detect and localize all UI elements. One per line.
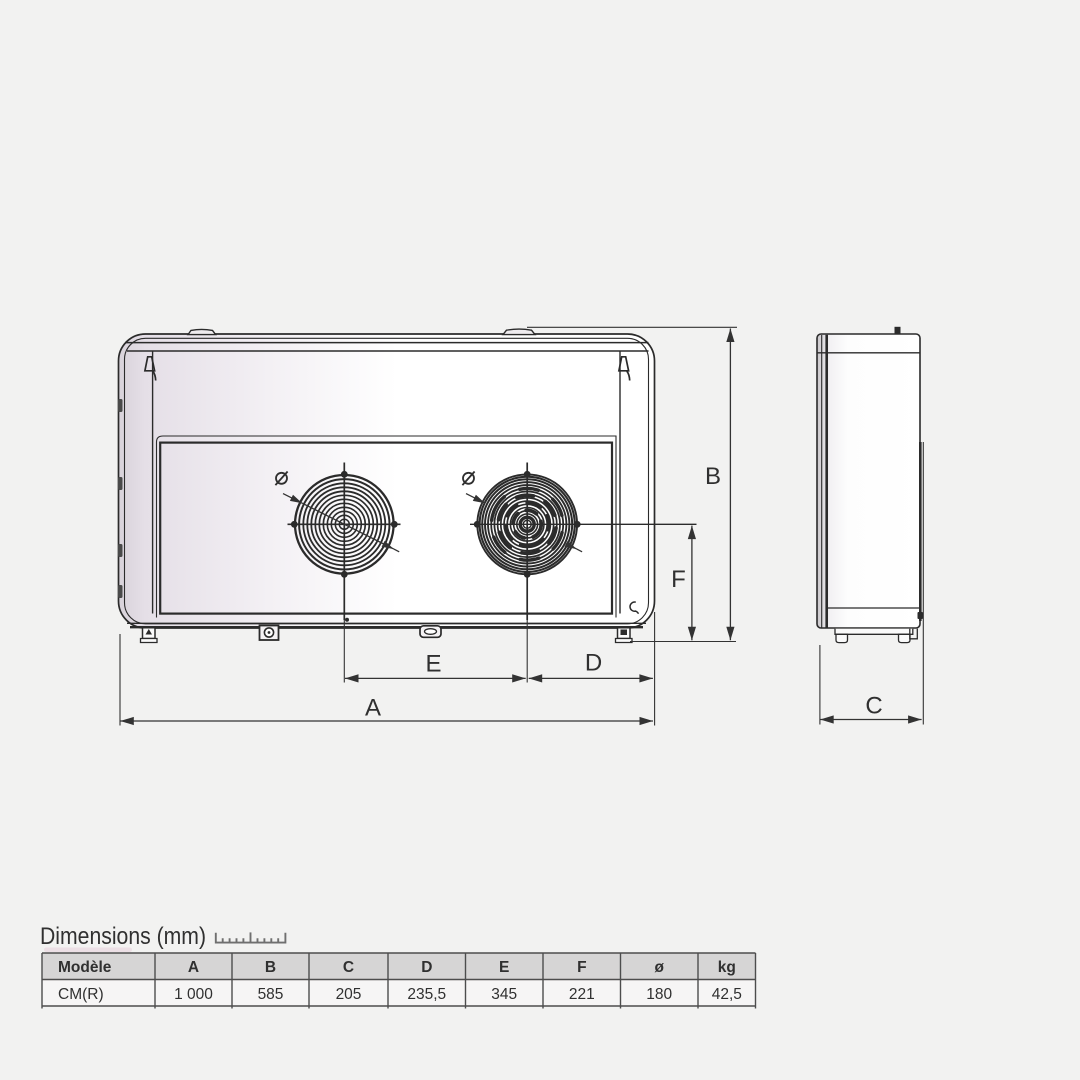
- svg-text:C: C: [865, 693, 882, 720]
- svg-text:Dimensions (mm): Dimensions (mm): [40, 923, 206, 950]
- svg-text:345: 345: [491, 986, 517, 1003]
- svg-text:ø: ø: [654, 959, 664, 976]
- svg-text:205: 205: [336, 986, 362, 1003]
- svg-text:D: D: [585, 650, 602, 677]
- svg-text:C: C: [343, 959, 354, 976]
- svg-text:585: 585: [258, 986, 284, 1003]
- svg-text:235,5: 235,5: [407, 986, 446, 1003]
- svg-text:A: A: [365, 695, 381, 722]
- svg-text:42,5: 42,5: [712, 986, 742, 1003]
- svg-text:F: F: [671, 566, 686, 593]
- svg-text:E: E: [499, 959, 509, 976]
- svg-text:D: D: [421, 959, 432, 976]
- svg-text:E: E: [425, 651, 441, 678]
- svg-text:CM(R): CM(R): [58, 986, 104, 1003]
- svg-text:180: 180: [646, 986, 672, 1003]
- svg-text:1 000: 1 000: [174, 986, 213, 1003]
- svg-text:B: B: [265, 959, 276, 976]
- svg-text:A: A: [188, 959, 199, 976]
- svg-text:B: B: [705, 463, 721, 490]
- svg-text:221: 221: [569, 986, 595, 1003]
- svg-text:Modèle: Modèle: [58, 959, 112, 976]
- svg-text:kg: kg: [718, 959, 736, 976]
- svg-text:F: F: [577, 959, 586, 976]
